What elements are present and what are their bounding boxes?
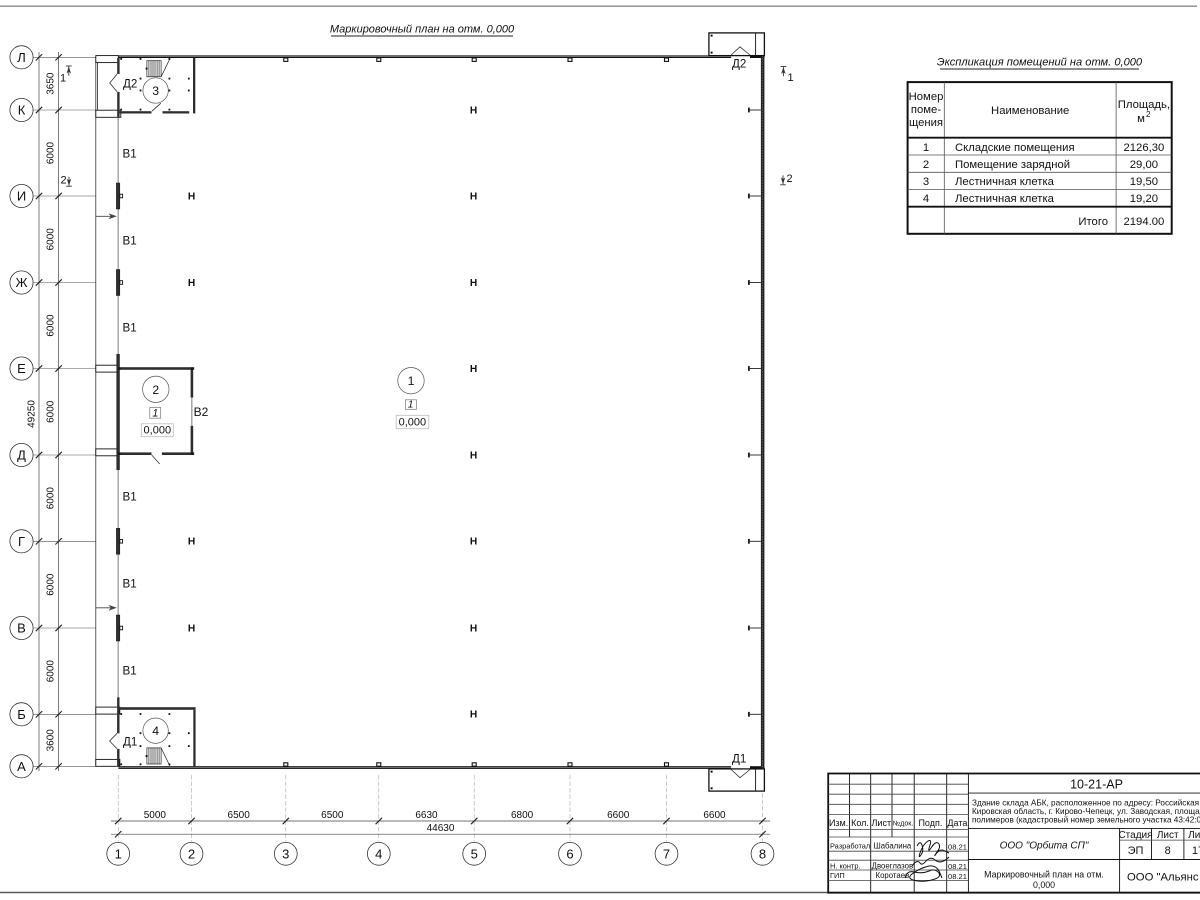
svg-text:4: 4 [923, 193, 929, 205]
svg-text:8: 8 [759, 846, 766, 861]
svg-text:5000: 5000 [144, 810, 167, 821]
svg-text:полимеров (кадастровый номер з: полимеров (кадастровый номер земельного … [972, 816, 1200, 825]
svg-text:м: м [1137, 113, 1145, 125]
svg-text:1: 1 [923, 142, 929, 154]
svg-text:08.21: 08.21 [948, 872, 967, 881]
svg-text:Коротаев: Коротаев [876, 871, 910, 880]
svg-text:Двоеглазов: Двоеглазов [872, 861, 913, 870]
svg-text:ГИП: ГИП [830, 871, 845, 880]
svg-text:Номер: Номер [909, 91, 944, 103]
svg-text:3: 3 [282, 846, 289, 861]
svg-text:Н: Н [188, 623, 195, 634]
svg-text:Помещение зарядной: Помещение зарядной [955, 159, 1070, 171]
svg-text:ЭП: ЭП [1128, 845, 1144, 857]
svg-text:Б: Б [17, 707, 26, 722]
svg-text:Н: Н [470, 450, 477, 461]
svg-text:Н: Н [470, 105, 477, 116]
svg-text:Шабалина: Шабалина [874, 842, 912, 851]
svg-text:Н: Н [470, 623, 477, 634]
svg-text:6000: 6000 [45, 228, 56, 251]
svg-text:Д1: Д1 [732, 752, 746, 765]
svg-text:6000: 6000 [45, 660, 56, 683]
svg-text:2: 2 [152, 383, 159, 397]
svg-text:Площадь,: Площадь, [1118, 99, 1170, 111]
svg-text:19,20: 19,20 [1130, 193, 1158, 205]
svg-text:44630: 44630 [427, 823, 455, 834]
svg-text:Н: Н [470, 278, 477, 289]
svg-text:В1: В1 [123, 322, 137, 335]
svg-text:6000: 6000 [45, 487, 56, 510]
svg-text:3: 3 [923, 176, 929, 188]
svg-text:08.21: 08.21 [948, 862, 967, 871]
svg-text:6800: 6800 [511, 810, 534, 821]
svg-text:0,000: 0,000 [144, 425, 172, 437]
svg-text:№док.: №док. [893, 821, 914, 828]
svg-text:2: 2 [1146, 110, 1151, 119]
svg-text:8: 8 [1165, 845, 1171, 857]
svg-text:6600: 6600 [703, 810, 726, 821]
svg-text:6000: 6000 [45, 400, 56, 423]
svg-text:3: 3 [152, 84, 159, 98]
svg-text:Дата: Дата [947, 818, 967, 828]
svg-text:5: 5 [471, 846, 478, 861]
svg-text:Экспликация помещений на отм.: Экспликация помещений на отм. 0,000 [937, 57, 1143, 69]
svg-text:Кол.: Кол. [851, 818, 869, 828]
svg-text:3600: 3600 [45, 729, 56, 752]
svg-text:6000: 6000 [45, 141, 56, 164]
svg-text:Наименование: Наименование [991, 105, 1069, 117]
svg-text:Стадия: Стадия [1118, 830, 1152, 841]
svg-text:поме-: поме- [911, 104, 941, 116]
svg-text:2: 2 [787, 173, 793, 185]
svg-text:Л: Л [17, 50, 26, 65]
svg-text:щения: щения [909, 117, 943, 129]
svg-text:Н. контр.: Н. контр. [830, 861, 861, 870]
svg-text:Н: Н [470, 191, 477, 202]
svg-text:6500: 6500 [228, 810, 251, 821]
svg-text:2: 2 [61, 175, 67, 187]
svg-text:Маркировочный план на отм. 0,0: Маркировочный план на отм. 0,000 [330, 24, 515, 36]
svg-text:Итого: Итого [1078, 216, 1108, 228]
svg-text:0,000: 0,000 [399, 417, 427, 429]
svg-text:6: 6 [566, 846, 573, 861]
svg-text:ООО "Орбита СП": ООО "Орбита СП" [1000, 839, 1089, 851]
svg-text:49250: 49250 [27, 400, 38, 428]
svg-text:В1: В1 [123, 665, 137, 678]
svg-text:6630: 6630 [415, 810, 438, 821]
svg-text:Лист: Лист [1188, 830, 1200, 841]
svg-text:Е: Е [17, 361, 26, 376]
svg-text:1: 1 [152, 407, 158, 419]
svg-text:2194.00: 2194.00 [1123, 216, 1164, 228]
svg-text:Ж: Ж [15, 275, 27, 290]
svg-text:Н: Н [188, 537, 195, 548]
svg-text:6600: 6600 [607, 810, 630, 821]
svg-text:4: 4 [375, 846, 382, 861]
svg-text:Д1: Д1 [123, 735, 137, 748]
svg-text:Подп.: Подп. [918, 818, 942, 828]
svg-text:В1: В1 [123, 148, 137, 161]
svg-text:К: К [18, 103, 26, 118]
svg-text:Маркировочный план на отм.: Маркировочный план на отм. [984, 869, 1104, 879]
svg-text:1: 1 [788, 72, 794, 84]
svg-text:В: В [17, 621, 26, 636]
svg-text:Разработал: Разработал [830, 842, 870, 851]
svg-text:В1: В1 [123, 235, 137, 248]
svg-text:6500: 6500 [321, 810, 344, 821]
svg-text:И: И [17, 189, 26, 204]
svg-text:6000: 6000 [45, 573, 56, 596]
svg-text:6000: 6000 [45, 314, 56, 337]
svg-text:7: 7 [663, 846, 670, 861]
svg-text:Д2: Д2 [732, 57, 746, 70]
svg-text:1: 1 [115, 846, 122, 861]
svg-text:В2: В2 [194, 405, 209, 419]
svg-text:1: 1 [408, 400, 414, 411]
svg-text:0,000: 0,000 [1033, 880, 1055, 890]
svg-text:Д: Д [17, 448, 26, 463]
svg-text:Лестничная клетка: Лестничная клетка [955, 193, 1055, 205]
svg-text:А: А [17, 759, 26, 774]
svg-text:В1: В1 [123, 578, 137, 591]
svg-text:Н: Н [470, 537, 477, 548]
svg-text:ООО "Альянс Проект": ООО "Альянс Проект" [1127, 871, 1200, 883]
svg-text:2: 2 [188, 846, 195, 861]
svg-text:Д2: Д2 [123, 78, 137, 91]
svg-text:Складские помещения: Складские помещения [955, 142, 1075, 154]
svg-text:1: 1 [60, 73, 66, 85]
svg-text:2: 2 [923, 159, 929, 171]
svg-text:3650: 3650 [45, 72, 56, 95]
svg-text:19,50: 19,50 [1130, 176, 1158, 188]
svg-text:08.21: 08.21 [948, 842, 967, 851]
svg-text:Н: Н [188, 278, 195, 289]
svg-text:Н: Н [470, 364, 477, 375]
svg-text:Лист: Лист [1157, 830, 1179, 841]
svg-text:Изм.: Изм. [829, 818, 848, 828]
svg-text:В1: В1 [123, 491, 137, 504]
svg-text:10-21-АР: 10-21-АР [1070, 777, 1123, 791]
svg-text:29,00: 29,00 [1130, 159, 1158, 171]
svg-text:Н: Н [188, 191, 195, 202]
svg-text:17: 17 [1192, 845, 1200, 857]
svg-text:Лестничная клетка: Лестничная клетка [955, 176, 1055, 188]
svg-text:2126,30: 2126,30 [1123, 142, 1164, 154]
svg-text:Н: Н [470, 710, 477, 721]
svg-text:1: 1 [408, 374, 415, 388]
svg-text:Лист: Лист [872, 818, 892, 828]
svg-text:4: 4 [152, 724, 159, 738]
svg-text:Г: Г [18, 534, 25, 549]
